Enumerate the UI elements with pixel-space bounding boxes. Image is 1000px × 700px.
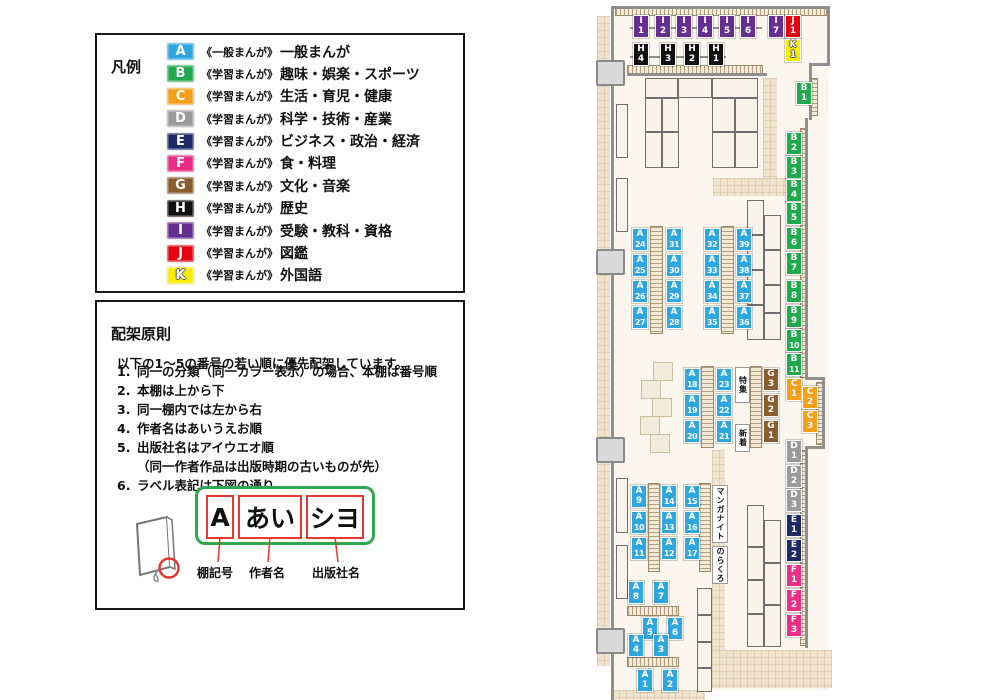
bookshelf-strip [699,483,711,572]
diagram-caption-2: 作者名 [249,564,285,581]
shelf-label-D3: D3 [786,489,802,512]
sign-特集: 特集 [735,367,750,403]
legend-panel: 凡例 A《一般まんが》一般まんがB《学習まんが》趣味・娯楽・スポーツC《学習まん… [95,33,465,293]
walkway [597,16,610,666]
door [596,628,625,654]
shelf-label-A38: A38 [736,254,752,277]
shelf-label-A24: A24 [632,228,648,251]
display-stand [652,398,672,417]
legend-prefix: 《学習まんが》 [201,200,278,216]
legend-chip-K: K [167,267,194,284]
shelf-label-A35: A35 [704,306,720,329]
shelf-label-A22: A22 [716,394,732,417]
legend-category-label: 文化・音楽 [280,176,350,196]
principle-rule: 1.同一の分類（同一カラー表示）の場合、本棚は番号順 [117,362,437,381]
shelf-label-A12: A12 [661,537,677,560]
door [596,60,625,86]
display-stand [650,434,670,453]
display-stand [641,380,661,399]
legend-prefix: 《学習まんが》 [201,133,278,149]
shelf-label-A34: A34 [704,280,720,303]
label-segment-2: あい [238,495,302,539]
sign-のらくろ: のらくろ [712,546,728,584]
sign-新着: 新着 [735,424,750,452]
reading-table [645,98,662,132]
label-segment-1: A [206,495,234,539]
shelf-label-A10: A10 [631,511,647,534]
legend-chip-G: G [167,177,194,194]
legend-item-K: K《学習まんが》外国語 [167,267,420,284]
wall [827,6,830,66]
legend-chip-J: J [167,245,194,262]
shelf-label-G2: G2 [763,394,779,417]
shelf-label-A1: A1 [637,669,653,692]
walkway [705,650,832,688]
walkway [763,78,777,180]
shelf-label-A28: A28 [666,306,682,329]
sign-マンガナイト: マンガナイト [712,485,728,543]
bookshelf-strip [721,226,734,334]
reading-table [764,215,781,250]
legend-item-H: H《学習まんが》歴史 [167,200,420,217]
shelf-label-A31: A31 [666,228,682,251]
shelf-label-A20: A20 [684,420,700,443]
walkway [612,690,705,700]
shelf-label-I5: I5 [719,15,735,38]
shelf-label-A32: A32 [704,228,720,251]
shelf-label-I7: I7 [768,15,784,38]
shelf-label-B4: B4 [786,179,802,202]
legend-prefix: 《学習まんが》 [201,178,278,194]
legend-item-E: E《学習まんが》ビジネス・政治・経済 [167,133,420,150]
legend-chip-C: C [167,88,194,105]
shelf-label-F2: F2 [786,589,802,612]
reading-table [645,132,662,168]
legend-category-label: 一般まんが [280,42,350,62]
rule-text: （同一作者作品は出版時期の古いものが先） [137,457,387,476]
rule-number: 1. [117,362,137,381]
legend-category-label: 受験・教科・資格 [280,221,392,241]
legend-category-label: 科学・技術・産業 [280,109,392,129]
shelf-label-A13: A13 [661,511,677,534]
shelf-label-H3: H3 [660,43,676,66]
bookshelf-strip [750,366,762,448]
reading-table [645,78,678,98]
shelf-label-B2: B2 [786,132,802,155]
legend-item-J: J《学習まんが》図鑑 [167,245,420,262]
label-diagram: Aあいシヨ 棚記号作者名出版社名 [97,480,463,610]
shelf-label-A16: A16 [684,511,700,534]
shelf-label-A14: A14 [661,485,677,508]
legend-prefix: 《学習まんが》 [201,267,278,283]
legend-prefix: 《学習まんが》 [201,66,278,82]
reading-table [712,98,735,132]
legend-item-C: C《学習まんが》生活・育児・健康 [167,88,420,105]
principle-rule: 3.同一棚内では左から右 [117,400,437,419]
shelf-label-I4: I4 [697,15,713,38]
reading-table [764,285,781,313]
shelf-label-A8: A8 [628,581,644,604]
reading-table [662,98,679,132]
legend-prefix: 《学習まんが》 [201,223,278,239]
reading-table [697,642,712,668]
shelf-label-A36: A36 [736,306,752,329]
shelf-label-H1: H1 [708,43,724,66]
legend-item-B: B《学習まんが》趣味・娯楽・スポーツ [167,65,420,82]
legend-title: 凡例 [111,56,141,77]
rule-number: 2. [117,381,137,400]
spine-label-frame: Aあいシヨ [195,486,375,545]
shelf-label-J1: J1 [785,15,801,38]
shelf-label-A23: A23 [716,368,732,391]
shelf-label-A25: A25 [632,254,648,277]
shelf-label-B7: B7 [786,252,802,275]
shelf-label-A19: A19 [684,394,700,417]
shelf-label-A33: A33 [704,254,720,277]
bookshelf-strip [650,226,663,334]
legend-chip-H: H [167,200,194,217]
shelf-label-I1: I1 [633,15,649,38]
shelf-label-E2: E2 [786,539,802,562]
legend-chip-B: B [167,65,194,82]
page: 特集新着マンガナイトのらくろI1I2I3I4I5I6I7J1K1H4H3H2H1… [0,0,1000,700]
rule-text: 同一の分類（同一カラー表示）の場合、本棚は番号順 [137,362,437,381]
legend-category-label: 趣味・娯楽・スポーツ [280,64,420,84]
reading-table [764,605,781,647]
shelf-label-A18: A18 [684,368,700,391]
shelf-label-D2: D2 [786,465,802,488]
shelf-label-A9: A9 [631,485,647,508]
principles-rules: 1.同一の分類（同一カラー表示）の場合、本棚は番号順2.本棚は上から下3.同一棚… [117,362,437,495]
shelf-label-I2: I2 [655,15,671,38]
reading-table [747,580,764,614]
shelf-label-F1: F1 [786,564,802,587]
legend-item-D: D《学習まんが》科学・技術・産業 [167,110,420,127]
rule-number: 4. [117,419,137,438]
wall [805,446,825,449]
reading-table [697,615,712,642]
reading-table [616,478,628,533]
rule-text: 作者名はあいうえお順 [137,419,262,438]
shelf-label-C3: C3 [802,410,818,433]
reading-table [735,98,758,132]
principles-panel: 配架原則 以下の1〜5の番号の若い順に優先配架しています。 1.同一の分類（同一… [95,300,465,610]
bookshelf-strip [701,366,714,448]
shelf-label-B5: B5 [786,202,802,225]
shelf-label-H2: H2 [684,43,700,66]
rule-number: 3. [117,400,137,419]
legend-chip-E: E [167,133,194,150]
legend-prefix: 《一般まんが》 [201,44,278,60]
principle-rule: 5.出版社名はアイウエオ順 [117,438,437,457]
legend-category-label: 食・料理 [280,153,336,173]
shelf-label-H4: H4 [633,43,649,66]
wall [627,73,767,76]
legend-item-G: G《学習まんが》文化・音楽 [167,177,420,194]
legend-chip-F: F [167,155,194,172]
reading-table [735,132,758,168]
shelf-label-G1: G1 [763,420,779,443]
reading-table [697,668,712,692]
shelf-label-B10: B10 [786,329,802,352]
diagram-caption-3: 出版社名 [312,564,360,581]
legend-chip-A: A [167,43,194,60]
shelf-label-A30: A30 [666,254,682,277]
legend-item-I: I《学習まんが》受験・教科・資格 [167,222,420,239]
legend-chip-I: I [167,222,194,239]
wall [611,6,614,700]
shelf-label-A4: A4 [628,634,644,657]
shelf-label-D1: D1 [786,440,802,463]
principles-title: 配架原則 [111,323,171,344]
legend-rows: A《一般まんが》一般まんがB《学習まんが》趣味・娯楽・スポーツC《学習まんが》生… [167,43,420,289]
legend-category-label: 生活・育児・健康 [280,86,392,106]
book-icon [127,506,193,586]
shelf-label-A39: A39 [736,228,752,251]
rule-text: 本棚は上から下 [137,381,225,400]
shelf-label-K1: K1 [785,39,801,62]
shelf-label-A15: A15 [684,485,700,508]
shelf-label-A21: A21 [716,420,732,443]
legend-prefix: 《学習まんが》 [201,88,278,104]
legend-item-A: A《一般まんが》一般まんが [167,43,420,60]
reading-table [764,563,781,605]
shelf-label-B9: B9 [786,305,802,328]
label-segment-3: シヨ [306,495,364,539]
wall [611,6,830,9]
bookshelf-strip [648,483,660,572]
shelf-label-A37: A37 [736,280,752,303]
legend-category-label: 図鑑 [280,243,308,263]
display-stand [640,416,660,435]
reading-table [697,588,712,615]
reading-table [747,505,764,547]
bookshelf-strip [627,606,679,616]
door [596,249,625,275]
reading-table [616,178,628,232]
reading-table [712,78,758,98]
shelf-label-C1: C1 [786,378,802,401]
display-stand [653,362,673,381]
shelf-label-I3: I3 [676,15,692,38]
shelf-label-A11: A11 [631,537,647,560]
legend-category-label: 外国語 [280,265,322,285]
legend-prefix: 《学習まんが》 [201,155,278,171]
legend-prefix: 《学習まんが》 [201,111,278,127]
shelf-label-A26: A26 [632,280,648,303]
reading-table [747,614,764,647]
reading-table [616,545,628,599]
shelf-label-A7: A7 [653,581,669,604]
shelf-label-B11: B11 [786,353,802,376]
shelf-label-A17: A17 [684,537,700,560]
principle-rule: （同一作者作品は出版時期の古いものが先） [117,457,437,476]
shelf-label-A29: A29 [666,280,682,303]
shelf-label-A2: A2 [662,669,678,692]
shelf-label-E1: E1 [786,514,802,537]
reading-table [678,78,712,98]
reading-table [764,520,781,563]
reading-table [764,313,781,340]
legend-item-F: F《学習まんが》食・料理 [167,155,420,172]
wall [822,377,825,449]
bookshelf-strip [627,657,679,667]
shelf-label-I6: I6 [740,15,756,38]
rule-number: 5. [117,438,137,457]
legend-category-label: ビジネス・政治・経済 [280,131,420,151]
shelf-label-B6: B6 [786,227,802,250]
shelf-label-A3: A3 [653,634,669,657]
shelf-label-B8: B8 [786,280,802,303]
wall [805,118,808,379]
shelf-label-A6: A6 [667,617,683,640]
reading-table [764,250,781,285]
rule-text: 同一棚内では左から右 [137,400,262,419]
rule-text: 出版社名はアイウエオ順 [137,438,274,457]
reading-table [712,132,735,168]
shelf-label-F3: F3 [786,614,802,637]
shelf-label-A27: A27 [632,306,648,329]
shelf-label-C2: C2 [802,386,818,409]
shelf-label-G3: G3 [763,368,779,391]
diagram-caption-1: 棚記号 [197,564,233,581]
wall [805,446,808,648]
reading-table [616,104,628,158]
door [596,437,625,463]
shelf-label-B1: B1 [796,82,812,105]
principle-rule: 4.作者名はあいうえお順 [117,419,437,438]
reading-table [747,547,764,580]
wall [810,63,829,66]
principle-rule: 2.本棚は上から下 [117,381,437,400]
shelf-label-B3: B3 [786,156,802,179]
legend-category-label: 歴史 [280,198,308,218]
legend-chip-D: D [167,110,194,127]
legend-prefix: 《学習まんが》 [201,245,278,261]
reading-table [662,132,679,168]
